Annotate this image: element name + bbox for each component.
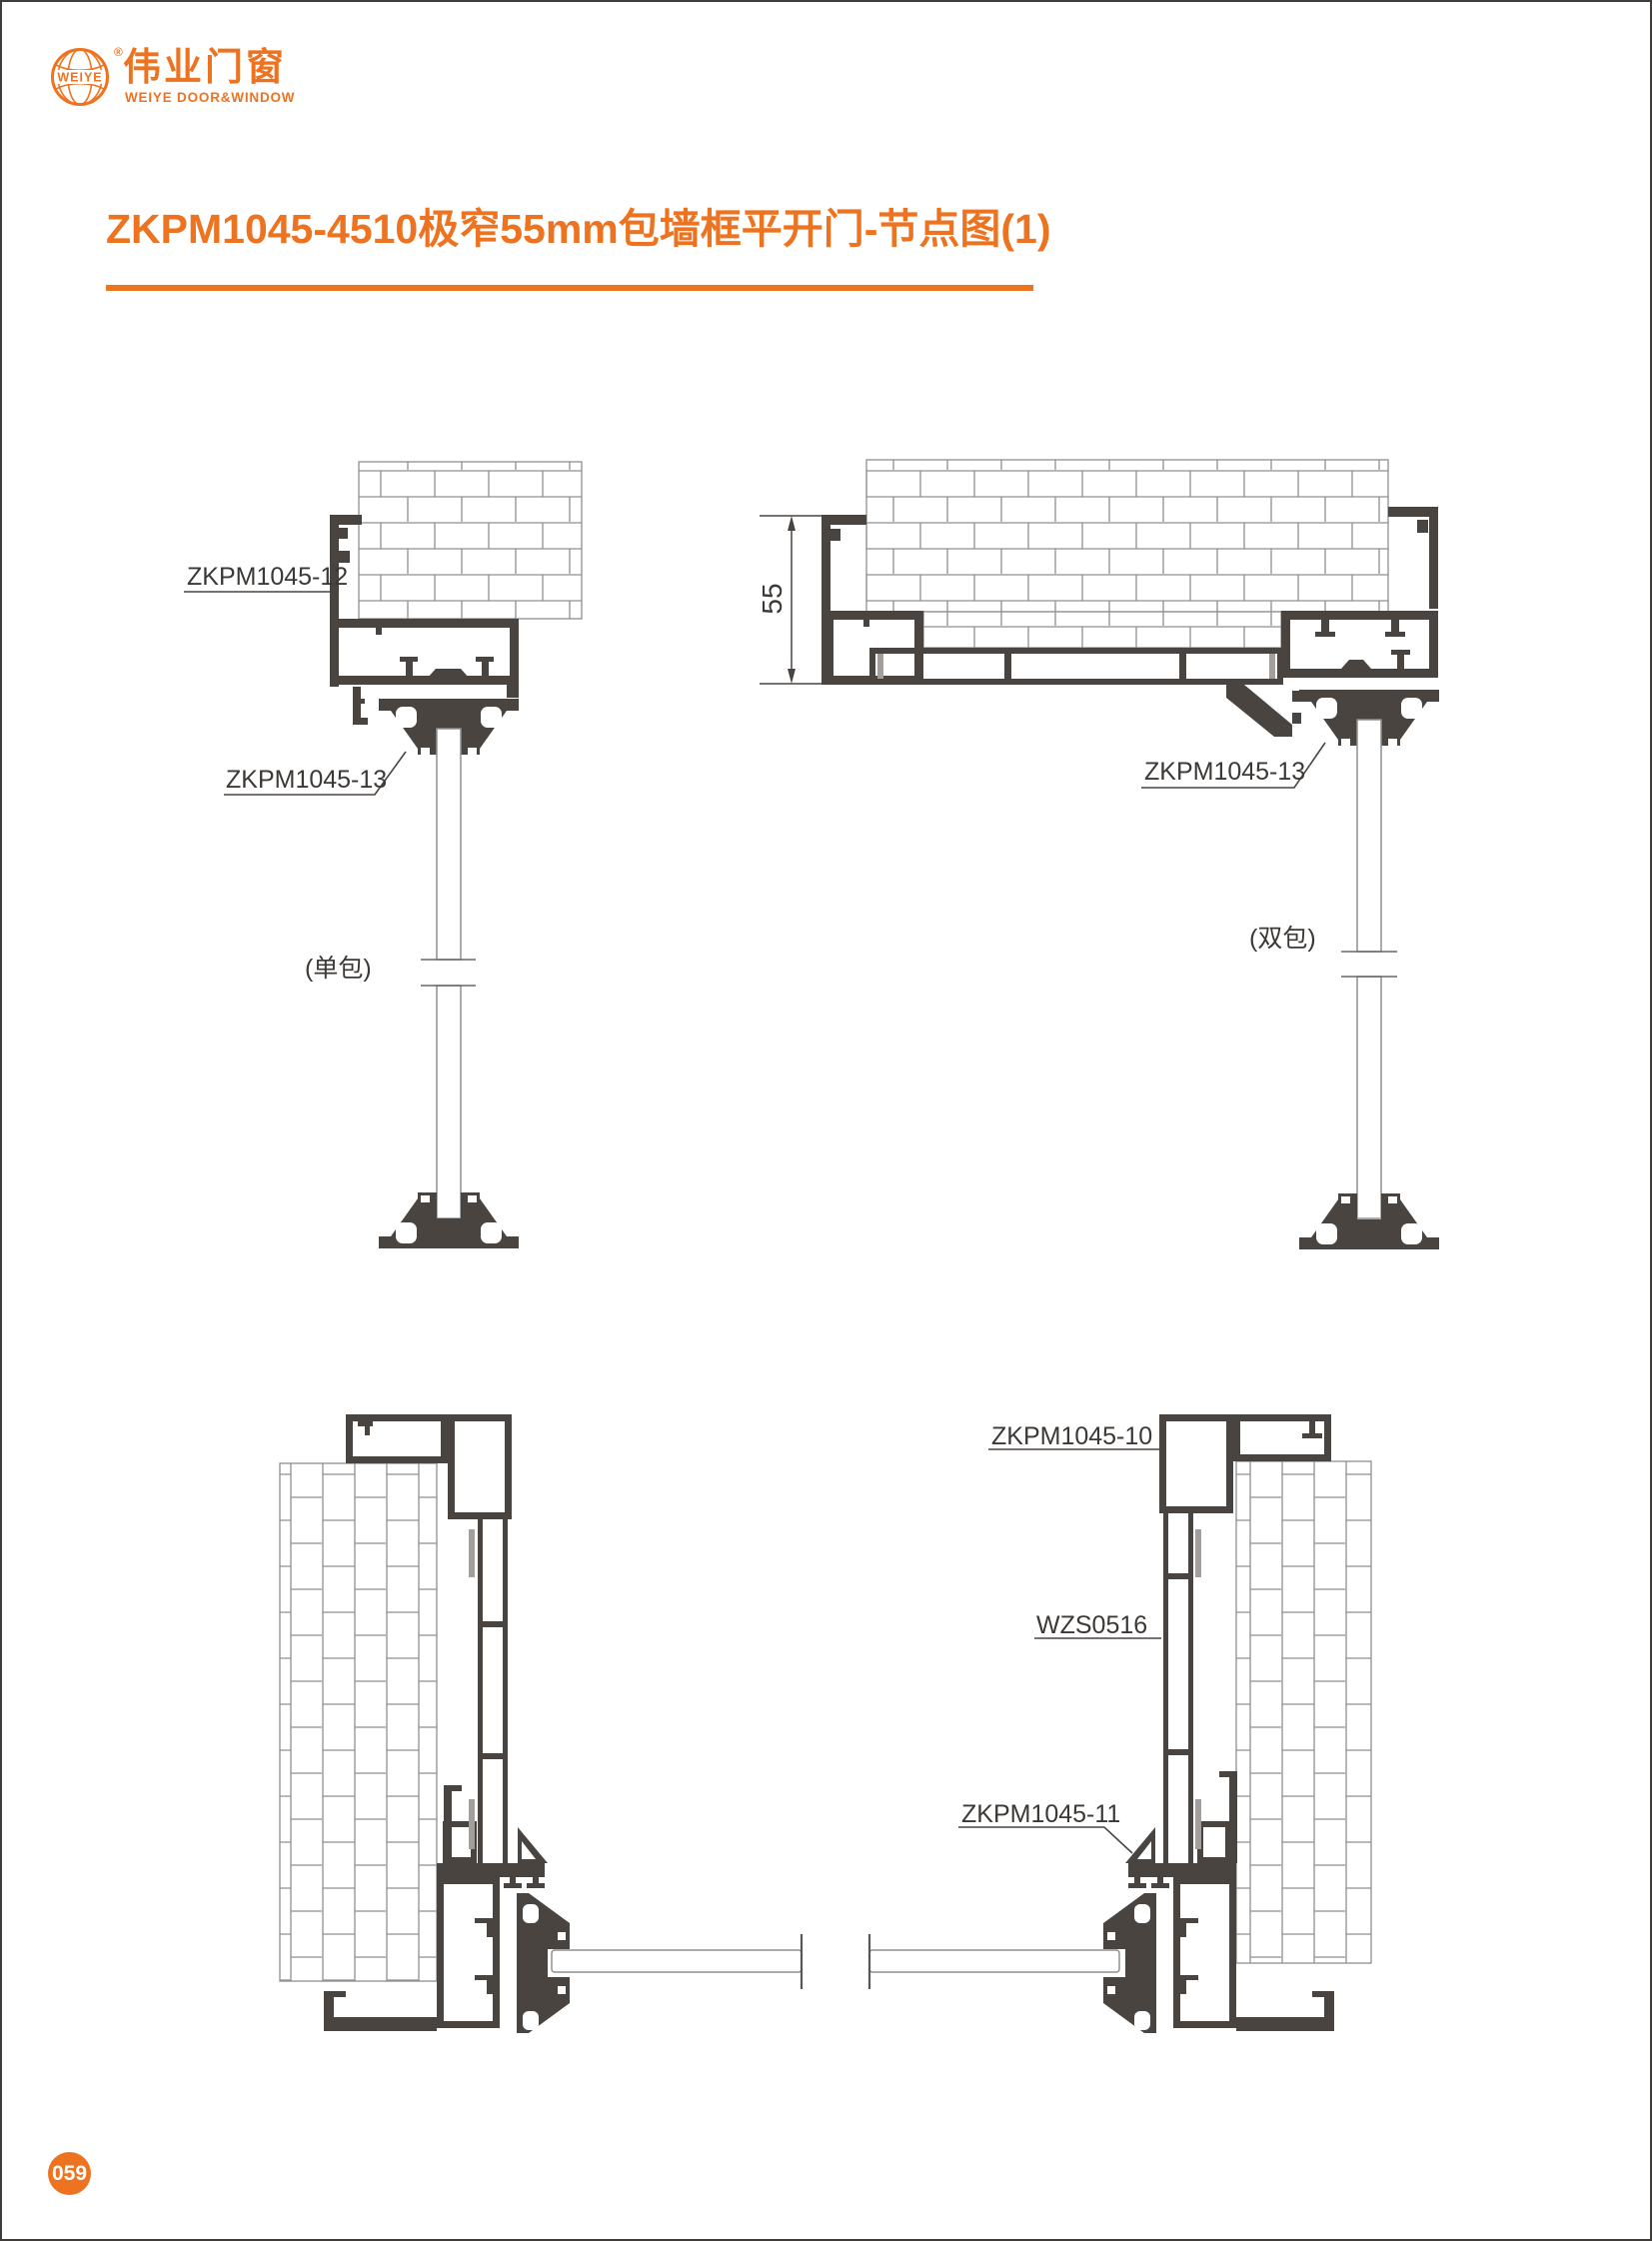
brick-wall xyxy=(1236,1461,1371,1963)
glass-pane xyxy=(437,986,461,1218)
caption-double-wrap: (双包) xyxy=(1249,927,1316,952)
dimension-55-text: 55 xyxy=(756,577,790,621)
page-number-badge: 059 xyxy=(48,2152,91,2195)
brick-wall xyxy=(359,462,582,619)
glass-break-lines xyxy=(421,960,476,986)
label-zkpm1045-10: ZKPM1045-10 xyxy=(991,1424,1152,1449)
label-zkpm1045-11: ZKPM1045-11 xyxy=(961,1802,1120,1827)
glass-break-lines xyxy=(1341,952,1397,977)
label-zkpm1045-13-left: ZKPM1045-13 xyxy=(226,768,387,793)
drawing-top-right xyxy=(760,460,1439,1249)
glass-pane xyxy=(437,729,461,960)
glass-pane xyxy=(552,1950,802,1972)
caption-single-wrap: (单包) xyxy=(305,957,372,982)
page-number: 059 xyxy=(52,2162,87,2186)
leader-line xyxy=(958,1827,1132,1853)
label-wzs0516: WZS0516 xyxy=(1036,1613,1147,1638)
catalog-page: WEIYE ® 伟业门窗 WEIYE DOOR&WINDOW ZKPM1045-… xyxy=(0,0,1652,2241)
brick-wall xyxy=(866,460,1388,612)
drawing-bottom-right xyxy=(869,1414,1371,2033)
brick-wall xyxy=(280,1463,437,1981)
drawing-bottom-left xyxy=(280,1414,802,2033)
brick-wall xyxy=(923,612,1281,648)
glass-pane xyxy=(1357,977,1381,1218)
label-zkpm1045-13-right: ZKPM1045-13 xyxy=(1144,760,1305,785)
label-zkpm1045-12: ZKPM1045-12 xyxy=(187,565,348,590)
section-drawings xyxy=(2,2,1652,2241)
glass-pane xyxy=(1357,720,1381,952)
glass-pane xyxy=(869,1950,1119,1972)
